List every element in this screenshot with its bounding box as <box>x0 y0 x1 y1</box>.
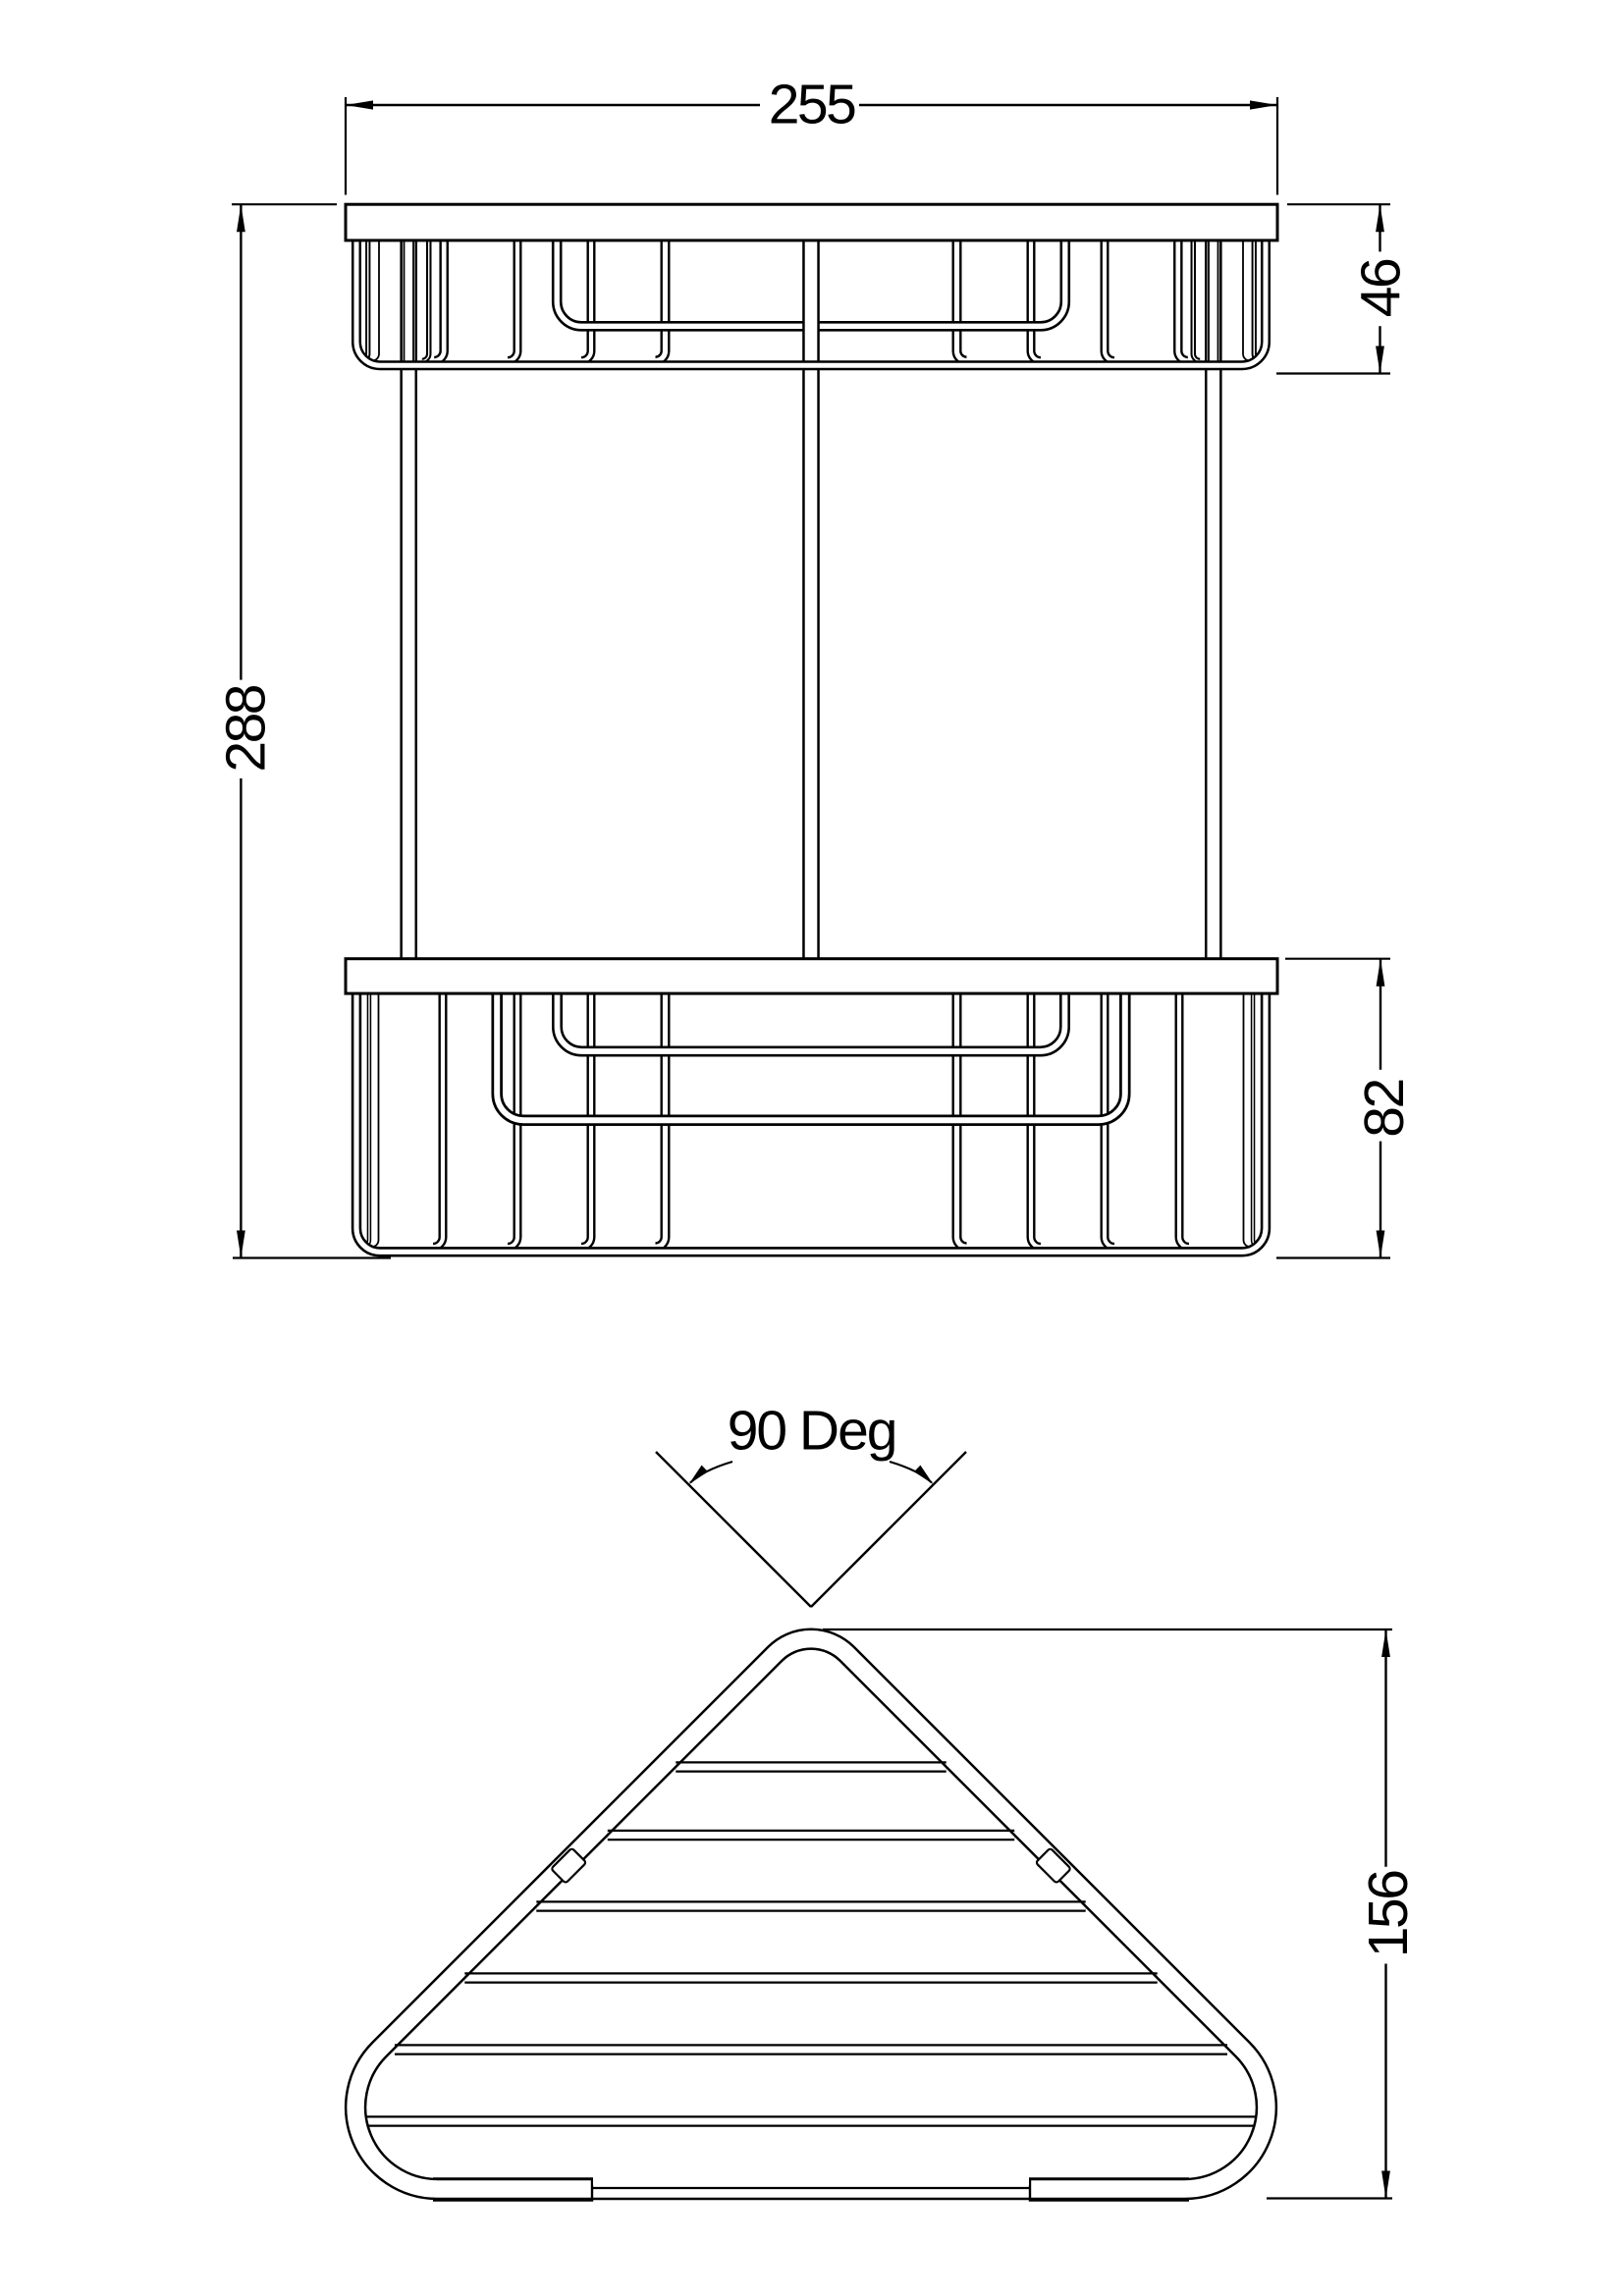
svg-text:156: 156 <box>1357 1871 1420 1957</box>
svg-text:288: 288 <box>214 685 277 772</box>
svg-text:46: 46 <box>1350 259 1413 317</box>
svg-text:82: 82 <box>1353 1080 1416 1137</box>
svg-text:90 Deg: 90 Deg <box>728 1399 896 1462</box>
svg-text:255: 255 <box>769 74 855 136</box>
